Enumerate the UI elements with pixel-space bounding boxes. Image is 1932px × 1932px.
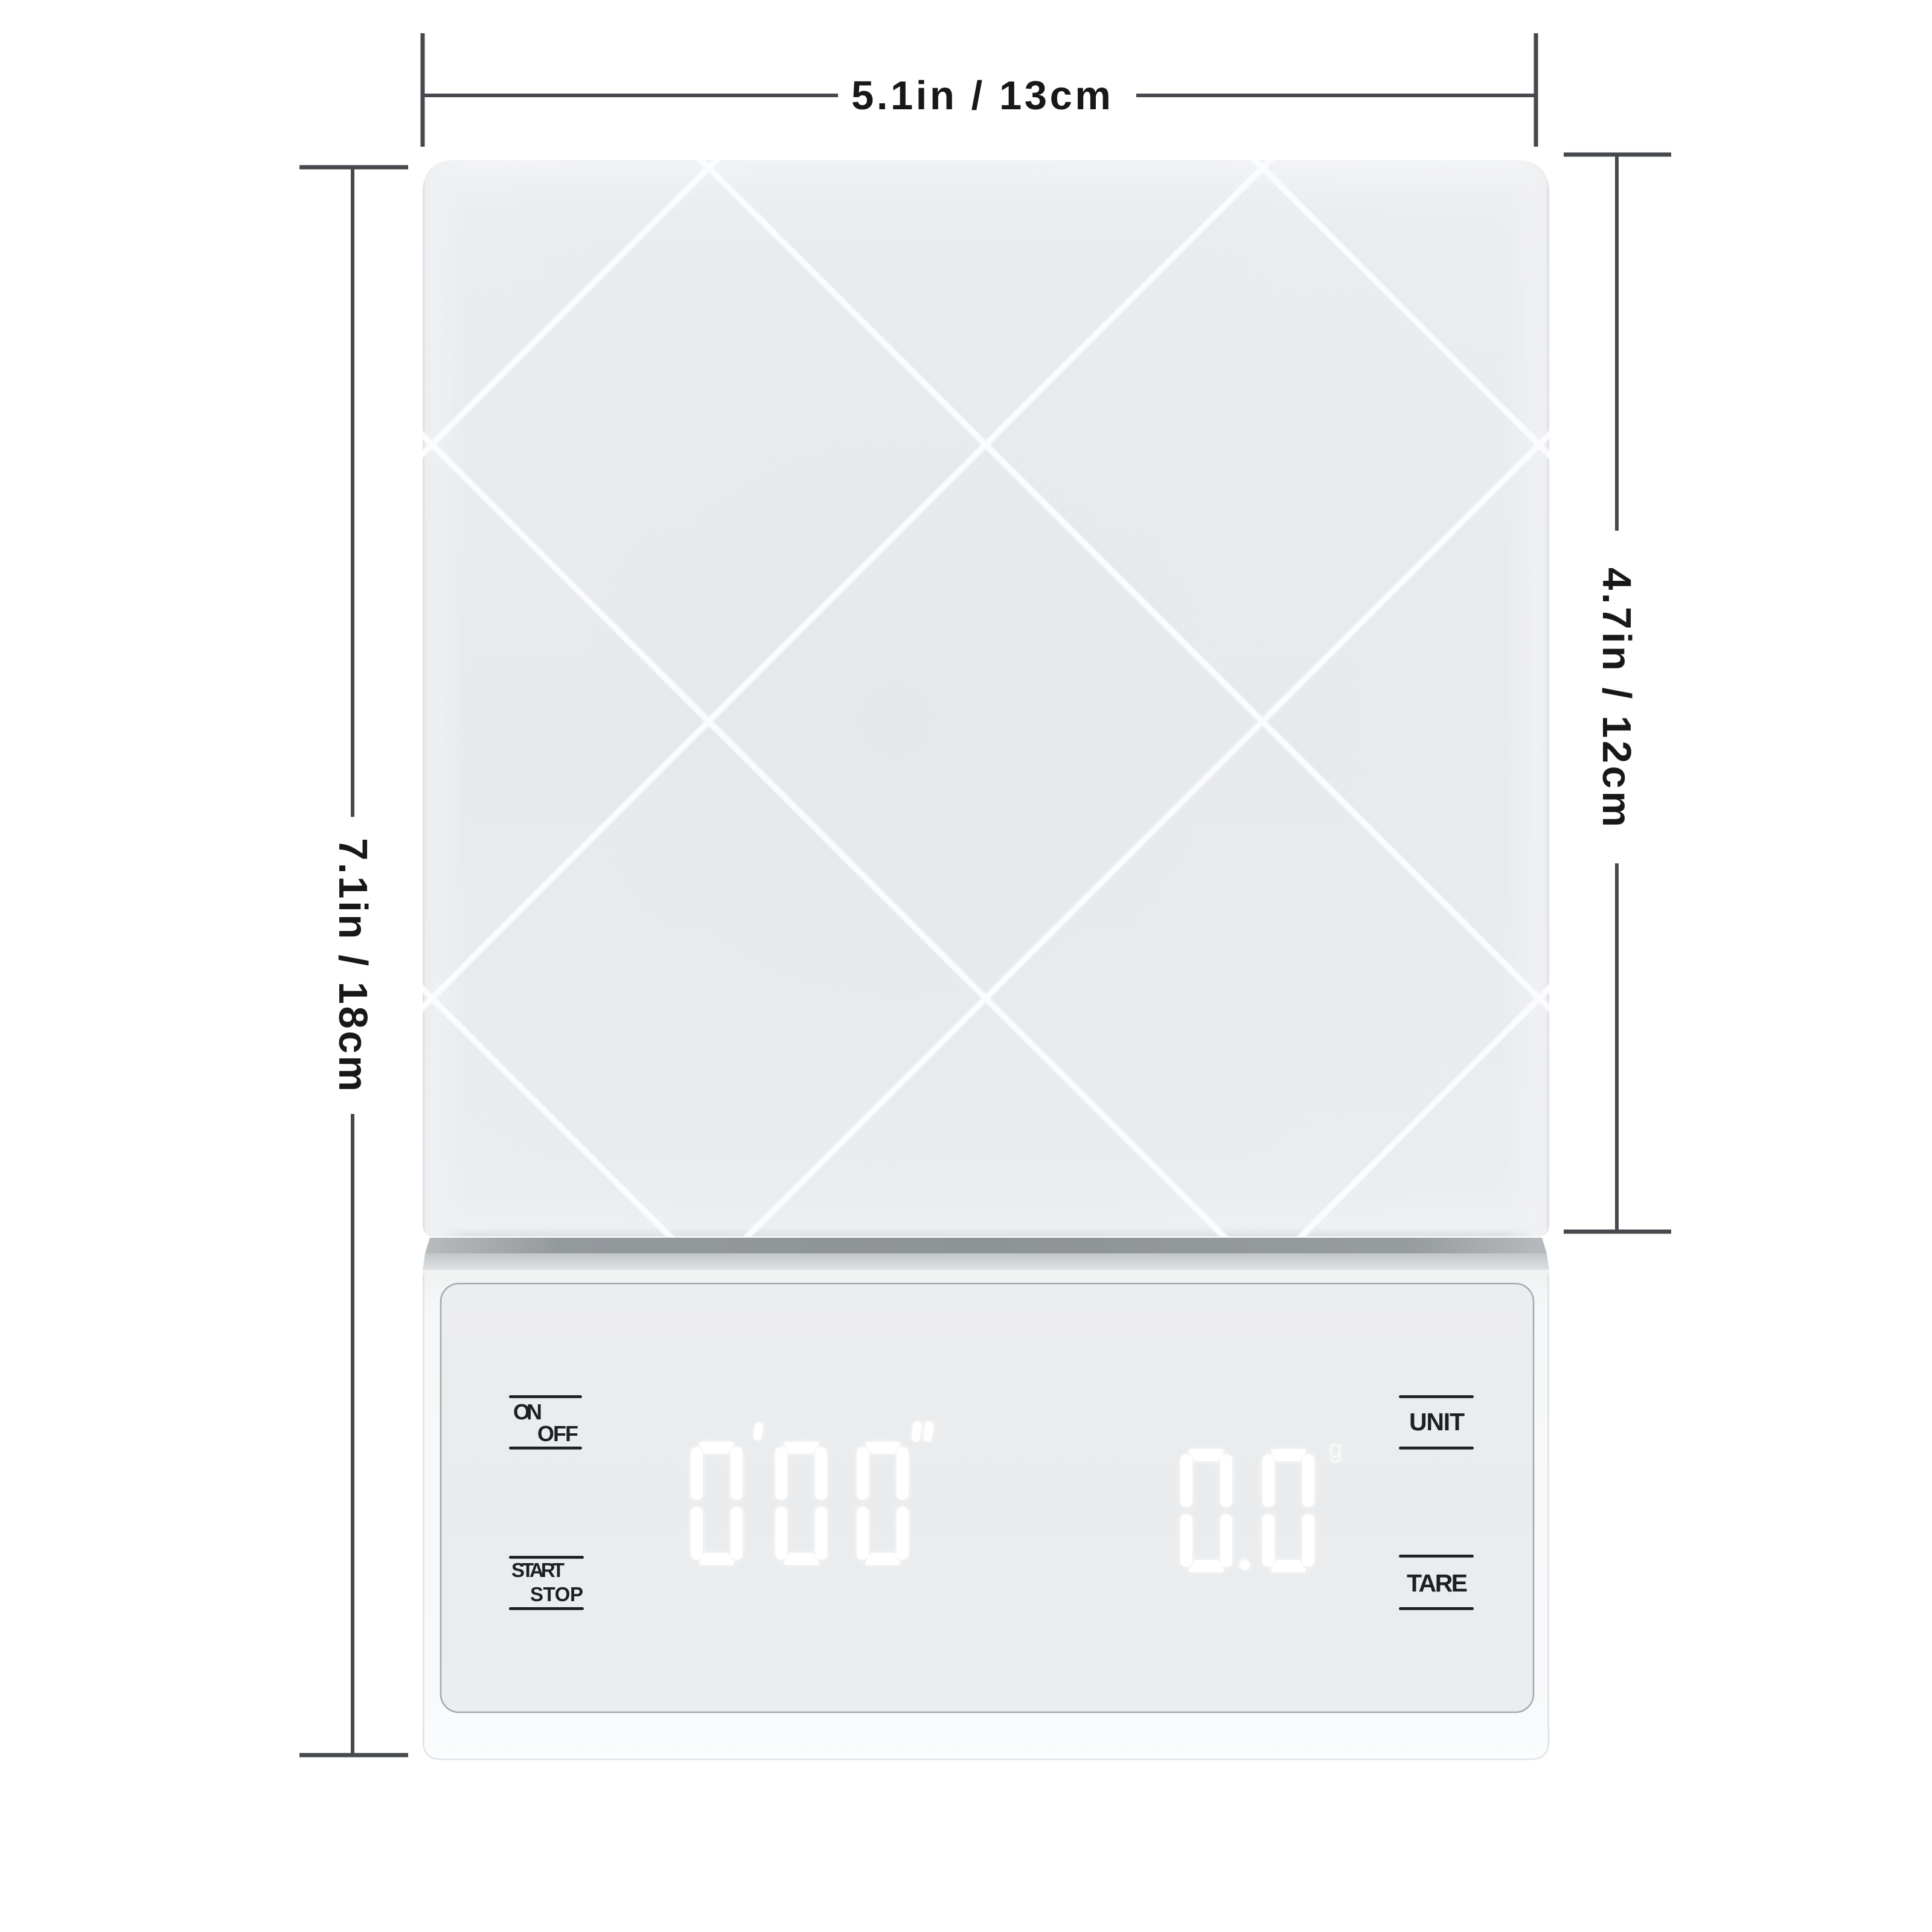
svg-text:OFF: OFF	[537, 1421, 578, 1446]
svg-text:5.1in / 13cm: 5.1in / 13cm	[851, 73, 1111, 118]
svg-text:TARE: TARE	[1407, 1569, 1468, 1597]
svg-text:4.7in / 12cm: 4.7in / 12cm	[1594, 568, 1639, 827]
svg-text:g: g	[1328, 1435, 1343, 1463]
svg-text:UNIT: UNIT	[1409, 1408, 1465, 1436]
svg-text:STOP: STOP	[530, 1583, 583, 1605]
svg-text:START: START	[511, 1559, 565, 1581]
svg-text:ON: ON	[513, 1399, 542, 1424]
